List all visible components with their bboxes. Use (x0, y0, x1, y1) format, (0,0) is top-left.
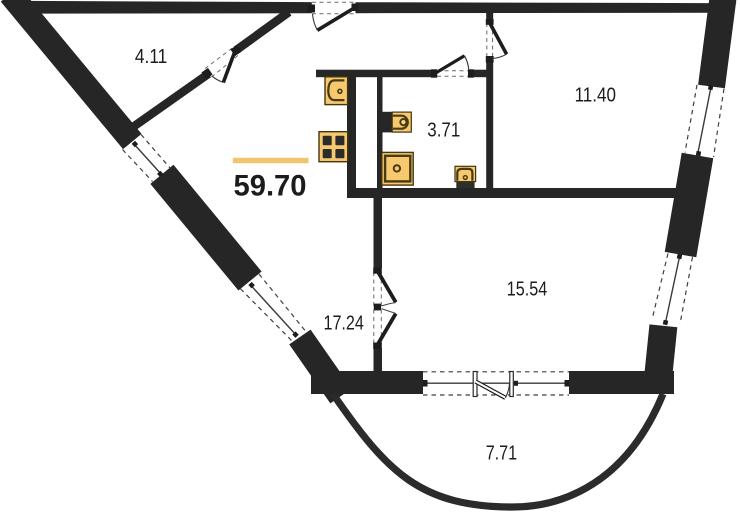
svg-text:59.70: 59.70 (234, 170, 307, 203)
svg-text:11.40: 11.40 (575, 85, 616, 107)
svg-text:4.11: 4.11 (135, 46, 168, 68)
svg-text:3.71: 3.71 (427, 120, 460, 142)
svg-text:17.24: 17.24 (323, 312, 364, 334)
svg-text:15.54: 15.54 (507, 278, 548, 300)
svg-text:7.71: 7.71 (486, 442, 517, 464)
